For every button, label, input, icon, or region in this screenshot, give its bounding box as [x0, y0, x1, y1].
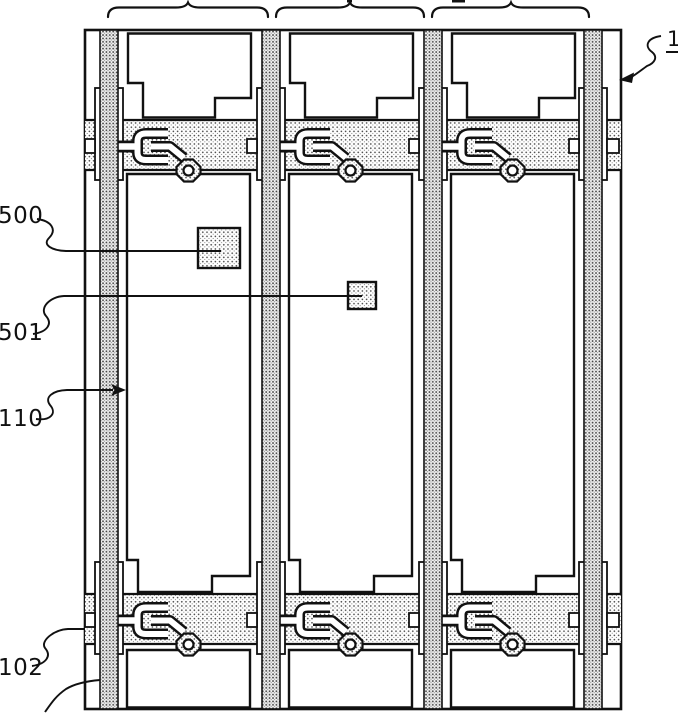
ref-label-gate-line: 102 [0, 657, 43, 680]
data-line-2 [262, 30, 280, 709]
patent-figure: 1 500 501 110 102 [0, 0, 678, 713]
ref-label-storage-large: 500 [0, 205, 43, 228]
tft-array-drawing [0, 0, 678, 713]
ref-label-substrate: 1 [666, 29, 678, 53]
data-line-3 [424, 30, 442, 709]
ref-label-data-line: 110 [0, 408, 43, 431]
ref-label-storage-small: 501 [0, 322, 43, 345]
storage-capacitor-500 [198, 228, 240, 268]
data-line-1 [100, 30, 118, 709]
data-line-4 [584, 30, 602, 709]
